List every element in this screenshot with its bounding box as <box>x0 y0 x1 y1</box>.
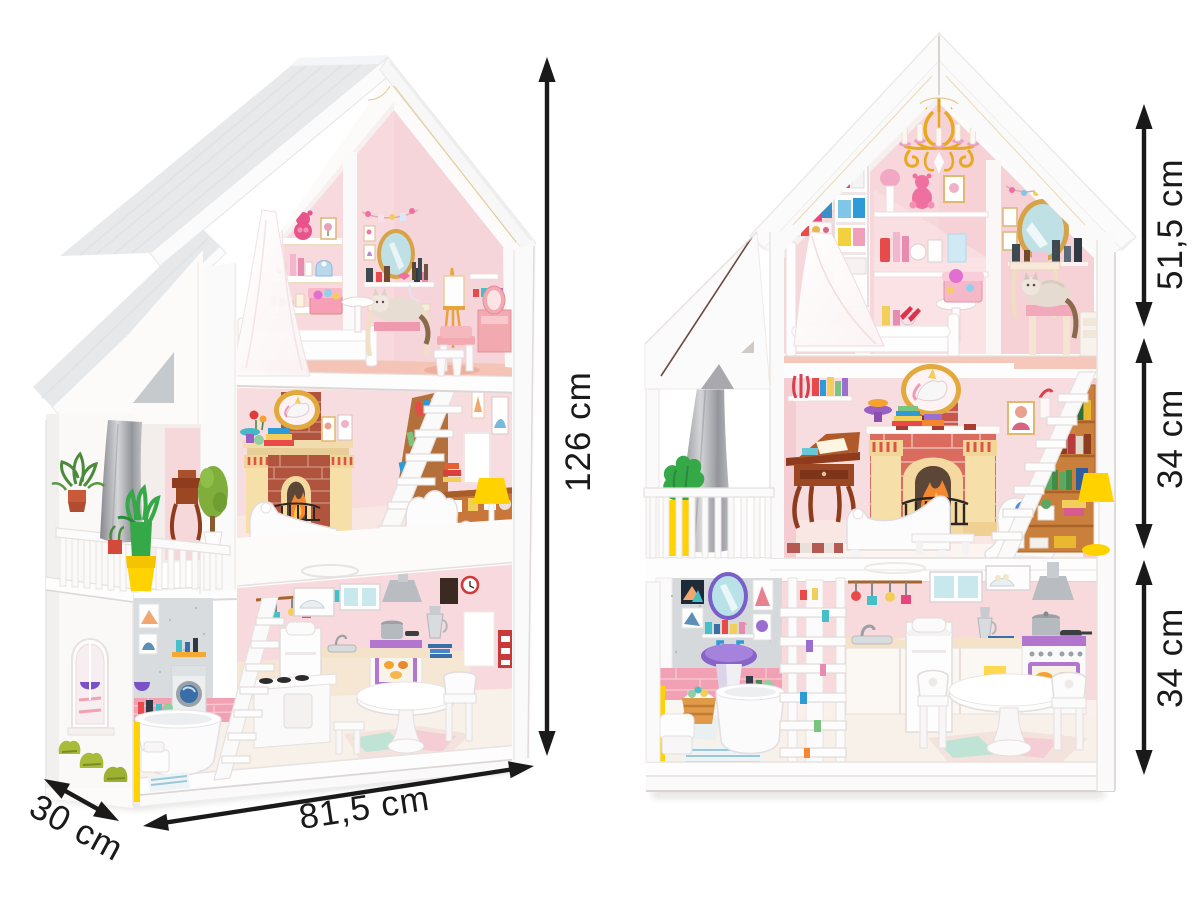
svg-text:34 cm: 34 cm <box>1151 608 1190 708</box>
svg-text:34 cm: 34 cm <box>1151 389 1190 489</box>
svg-text:126 cm: 126 cm <box>559 371 598 492</box>
svg-text:51,5 cm: 51,5 cm <box>1151 159 1190 291</box>
